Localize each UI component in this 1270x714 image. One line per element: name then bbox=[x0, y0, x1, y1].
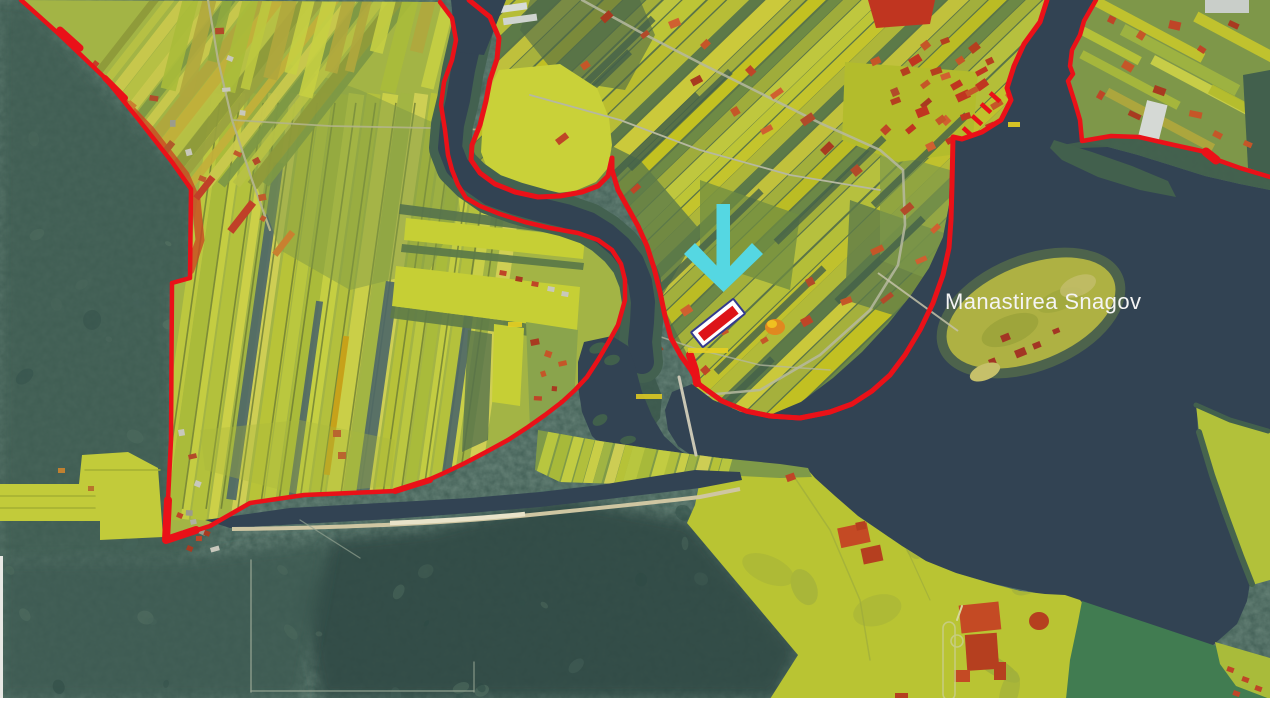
svg-text:Manastirea Snagov: Manastirea Snagov bbox=[945, 289, 1141, 314]
